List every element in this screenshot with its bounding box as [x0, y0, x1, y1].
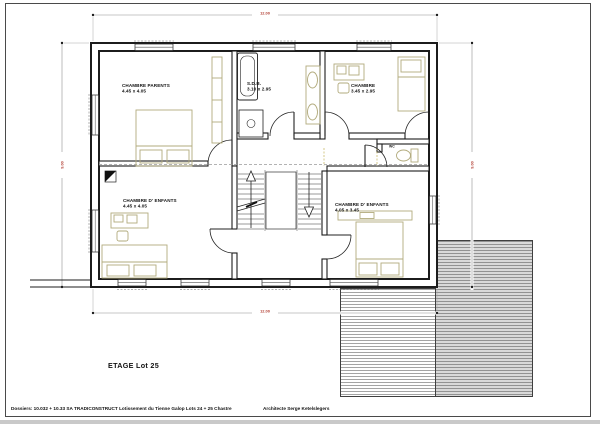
room-size-bedroom-ne: 3.45 x 2.95 [351, 89, 375, 94]
bathtub [238, 53, 258, 100]
room-label-kids-right: CHAMBRE D' ENFANTS [335, 202, 389, 207]
dimension-right: 9.00 [469, 161, 474, 169]
room-label-parents: CHAMBRE PARENTS [122, 83, 170, 88]
room-size-kids-left: 4.45 x 4.05 [123, 204, 147, 209]
dimension-top: 12.00 [260, 10, 270, 15]
sheet-title: ETAGE Lot 25 [108, 361, 159, 370]
footer-dossier: Dossiers: 10.032 + 10.33 SA TRADICONSTRU… [11, 406, 232, 411]
dimension-bottom: 12.00 [260, 308, 270, 313]
room-size-bathroom: 3.10 x 2.95 [247, 87, 271, 92]
room-label-kids-left: CHAMBRE D' ENFANTS [123, 198, 177, 203]
room-size-parents: 4.45 x 4.05 [122, 89, 146, 94]
floor-plan-svg: 12.00 12.00 9.00 9.00 [0, 0, 600, 424]
room-label-bathroom: S.D.B. [247, 81, 261, 86]
room-label-wc: WC [389, 145, 395, 149]
footer-architect: Architecte Serge Ketelslegers [263, 406, 330, 411]
dimension-left: 9.00 [59, 161, 64, 169]
shower [239, 110, 263, 137]
flue-marker [105, 171, 116, 182]
drawing-sheet: 12.00 12.00 9.00 9.00 [0, 0, 600, 424]
room-label-bedroom-ne: CHAMBRE [351, 83, 375, 88]
room-size-kids-right: 4.05 x 3.45 [335, 208, 359, 213]
